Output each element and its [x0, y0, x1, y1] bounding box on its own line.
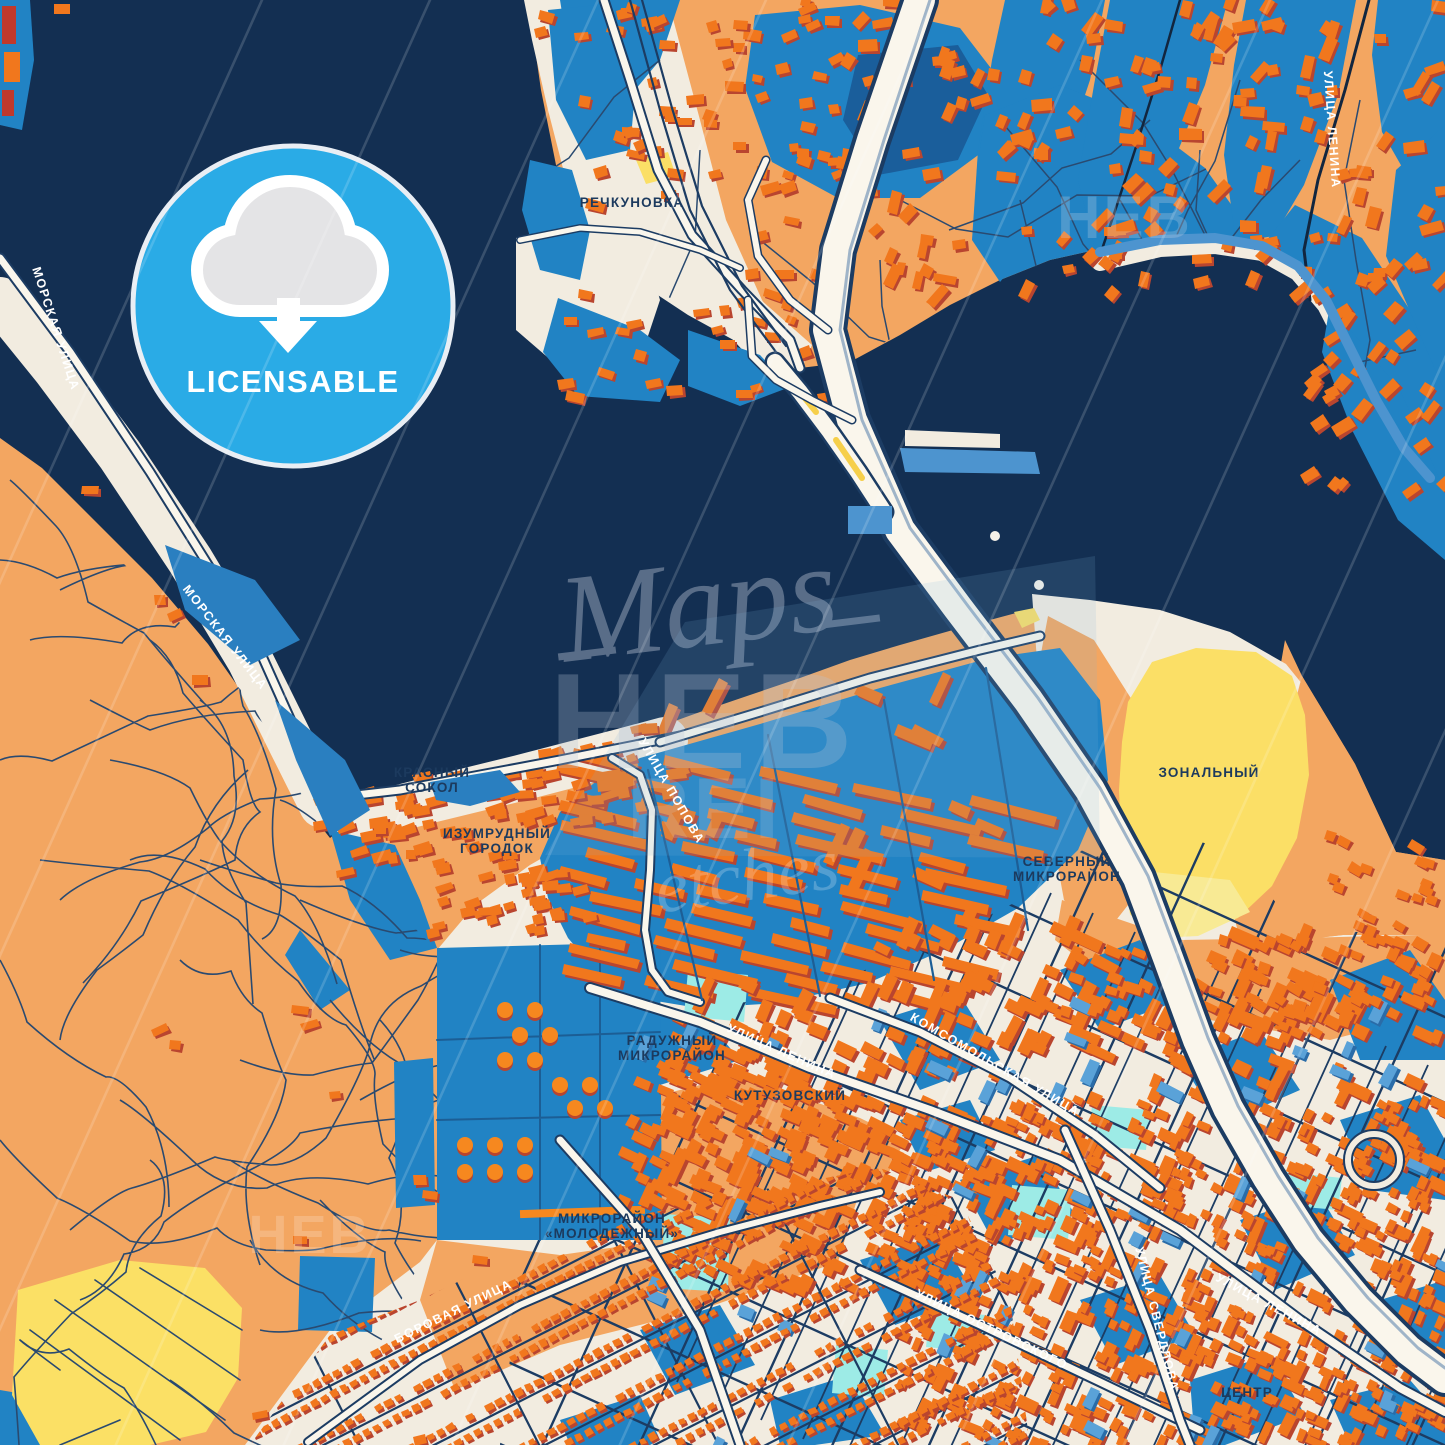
svg-text:«МОЛОДЕЖНЫЙ»: «МОЛОДЕЖНЫЙ»: [545, 1226, 679, 1241]
svg-text:МИКРОРАЙОН: МИКРОРАЙОН: [618, 1048, 726, 1063]
svg-text:РЕЧКУНОВКА: РЕЧКУНОВКА: [580, 195, 684, 210]
svg-text:КРАСНЫЙ: КРАСНЫЙ: [394, 765, 470, 780]
svg-text:ГОРОДОК: ГОРОДОК: [460, 841, 534, 856]
svg-text:ИЗУМРУДНЫЙ: ИЗУМРУДНЫЙ: [443, 826, 551, 841]
svg-text:МИКРОРАЙОН: МИКРОРАЙОН: [558, 1211, 666, 1226]
svg-text:СЕВЕРНЫЙ: СЕВЕРНЫЙ: [1023, 854, 1112, 869]
svg-text:МИКРОРАЙОН: МИКРОРАЙОН: [1013, 869, 1121, 884]
svg-text:КУТУЗОВСКИЙ: КУТУЗОВСКИЙ: [734, 1088, 846, 1103]
svg-text:ЦЕНТР: ЦЕНТР: [1221, 1385, 1273, 1400]
svg-text:РАДУЖНЫЙ: РАДУЖНЫЙ: [627, 1033, 718, 1048]
svg-text:LICENSABLE: LICENSABLE: [186, 364, 399, 399]
svg-text:HEB: HEB: [248, 1205, 371, 1265]
svg-text:ЗОНАЛЬНЫЙ: ЗОНАЛЬНЫЙ: [1158, 765, 1259, 780]
